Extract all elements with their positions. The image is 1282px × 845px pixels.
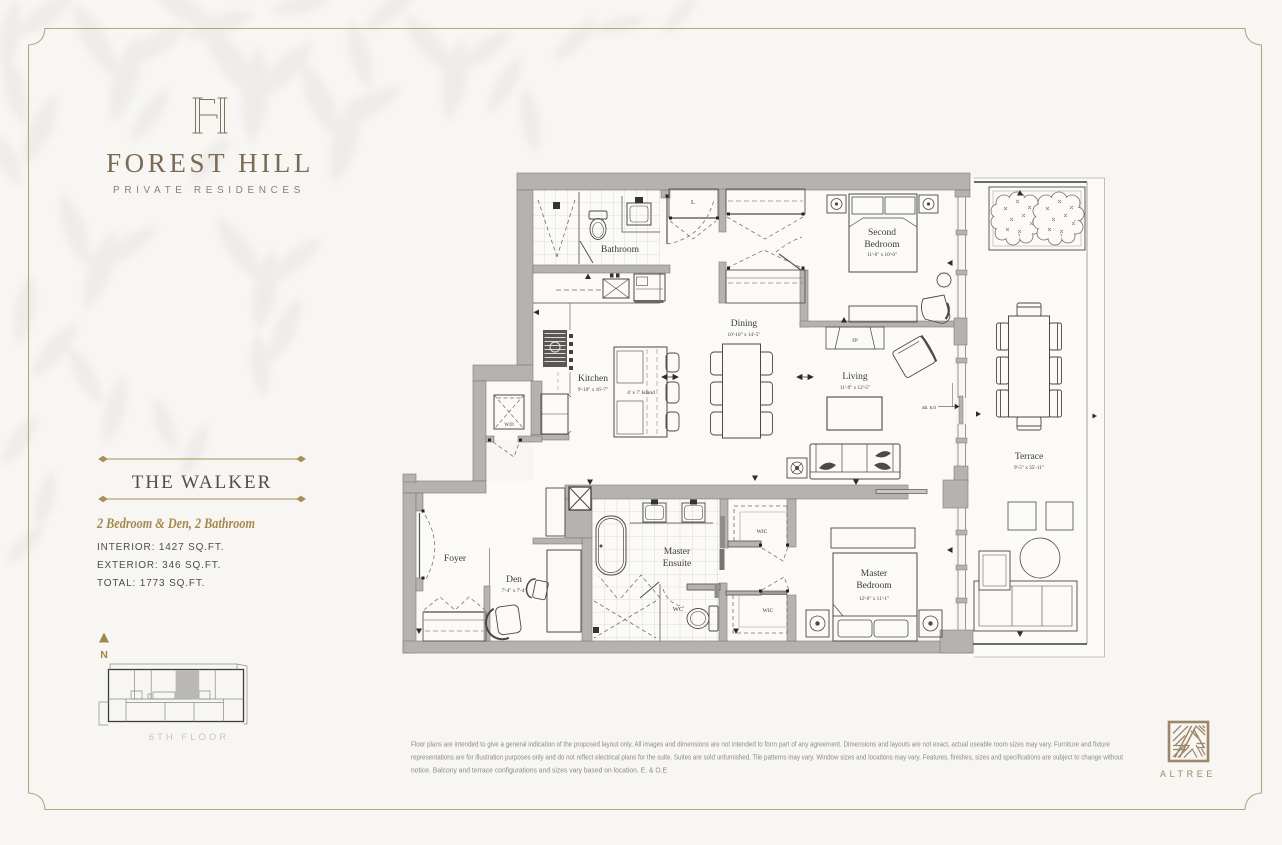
svg-text:10'-10" x 14'-5": 10'-10" x 14'-5" [728, 332, 761, 338]
svg-text:6TH FLOOR: 6TH FLOOR [149, 732, 229, 743]
svg-text:Master: Master [664, 547, 691, 557]
svg-text:11'-9" x 12'-5": 11'-9" x 12'-5" [840, 385, 870, 391]
svg-text:Floor plans are intended to gi: Floor plans are intended to give a gener… [411, 740, 1110, 749]
svg-text:4' x 7' Island: 4' x 7' Island [627, 390, 655, 396]
svg-text:11'-6" x 10'-6": 11'-6" x 10'-6" [867, 252, 897, 258]
svg-text:ab. 5.0: ab. 5.0 [922, 405, 936, 410]
svg-text:representations are for illust: representations are for illustration pur… [411, 753, 1123, 762]
svg-text:Dining: Dining [731, 319, 758, 329]
svg-text:THE WALKER: THE WALKER [132, 472, 273, 493]
svg-text:Second: Second [868, 228, 896, 238]
svg-text:7'-4" x 7'-4": 7'-4" x 7'-4" [501, 588, 526, 594]
svg-text:FOREST HILL: FOREST HILL [106, 148, 314, 178]
svg-text:notice. Balcony and terrace co: notice. Balcony and terrace configuratio… [411, 766, 667, 775]
svg-text:Foyer: Foyer [444, 554, 467, 564]
svg-text:Master: Master [861, 569, 888, 579]
svg-text:N: N [100, 649, 108, 661]
svg-text:L: L [691, 199, 695, 206]
svg-text:Bedroom: Bedroom [864, 240, 900, 250]
svg-text:Living: Living [842, 372, 868, 382]
svg-text:PRIVATE RESIDENCES: PRIVATE RESIDENCES [113, 185, 305, 196]
svg-text:Kitchen: Kitchen [578, 374, 608, 384]
svg-text:Bathroom: Bathroom [601, 245, 640, 255]
svg-text:Ensuite: Ensuite [663, 559, 692, 569]
svg-text:Den: Den [506, 575, 522, 585]
svg-text:W/D: W/D [504, 423, 514, 428]
svg-text:WC: WC [673, 606, 683, 613]
svg-text:Bedroom: Bedroom [856, 581, 892, 591]
svg-text:Terrace: Terrace [1015, 452, 1043, 462]
svg-text:EXTERIOR: 346 SQ.FT.: EXTERIOR: 346 SQ.FT. [97, 560, 221, 571]
svg-text:WIC: WIC [757, 529, 768, 535]
svg-text:2 Bedroom & Den, 2 Bathroom: 2 Bedroom & Den, 2 Bathroom [96, 516, 255, 532]
svg-text:9'-5" x 35'-11": 9'-5" x 35'-11" [1014, 465, 1044, 471]
svg-text:TOTAL: 1773 SQ.FT.: TOTAL: 1773 SQ.FT. [97, 578, 205, 589]
svg-text:INTERIOR: 1427 SQ.FT.: INTERIOR: 1427 SQ.FT. [97, 542, 224, 553]
svg-text:12'-6" x 11'-1": 12'-6" x 11'-1" [859, 596, 889, 602]
svg-text:FP: FP [852, 339, 858, 344]
svg-text:ALTREE: ALTREE [1160, 769, 1216, 779]
svg-text:9'-10" x 16'-7": 9'-10" x 16'-7" [578, 387, 608, 393]
svg-text:WIC: WIC [763, 608, 774, 614]
